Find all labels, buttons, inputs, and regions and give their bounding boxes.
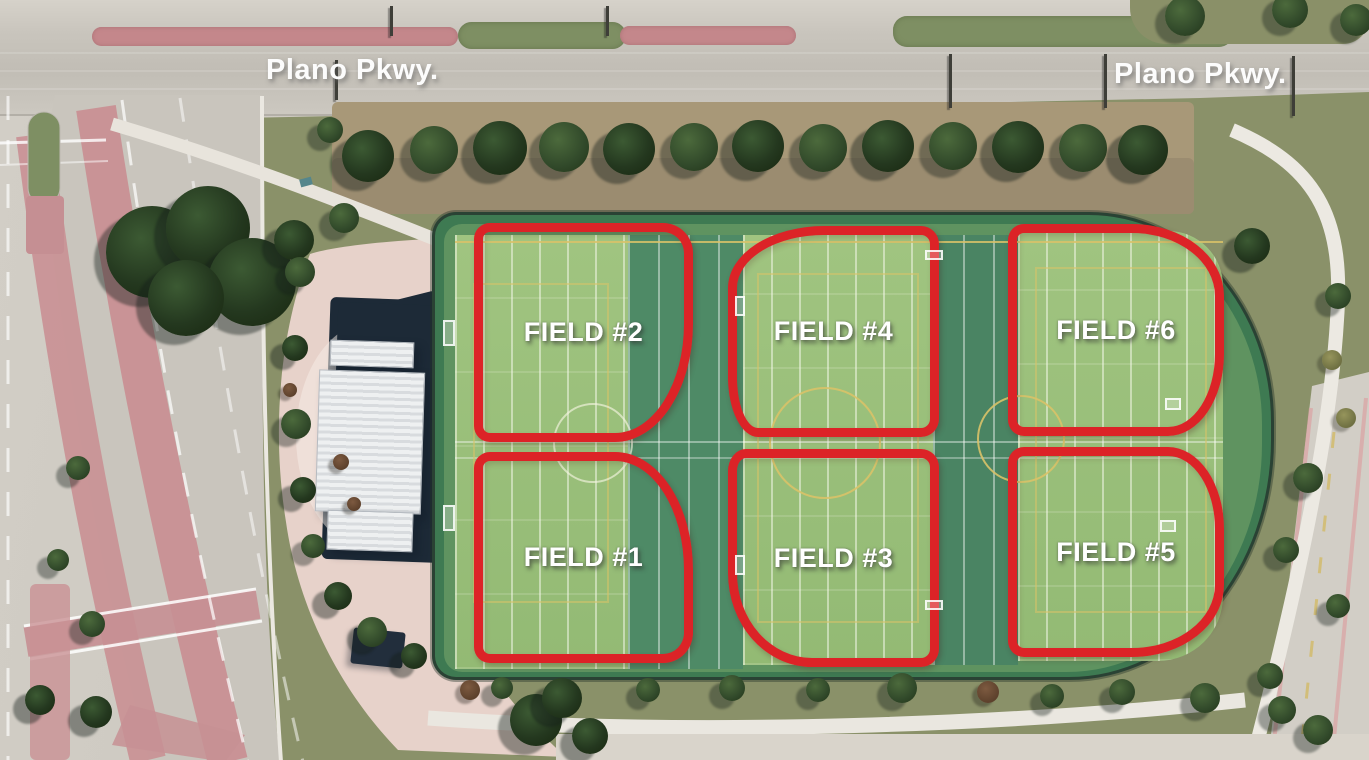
tree	[66, 456, 90, 480]
tree	[1059, 124, 1107, 172]
tree	[80, 696, 112, 728]
soccer-goal	[925, 250, 943, 260]
tree	[603, 123, 655, 175]
tree	[1322, 350, 1342, 370]
tree	[887, 673, 917, 703]
pavilion-main-roof	[315, 369, 425, 514]
field-5-outline: FIELD #5	[1008, 447, 1224, 657]
tree	[1109, 679, 1135, 705]
tree	[329, 203, 359, 233]
tree	[342, 130, 394, 182]
tree	[1040, 684, 1064, 708]
pavilion-roof-section	[326, 510, 413, 553]
tree	[333, 454, 349, 470]
tree	[281, 409, 311, 439]
tree	[1257, 663, 1283, 689]
light-pole	[1104, 54, 1107, 108]
tree	[542, 678, 582, 718]
aerial-map: FIELD #2 FIELD #1 FIELD #4 FIELD #3 FIEL…	[0, 0, 1369, 760]
tree	[274, 220, 314, 260]
tree	[148, 260, 224, 336]
tree	[460, 680, 480, 700]
tree	[401, 643, 427, 669]
field-4-label: FIELD #4	[774, 316, 894, 347]
tree	[317, 117, 343, 143]
red-brick-patch	[30, 584, 70, 760]
tree	[670, 123, 718, 171]
tree	[1325, 283, 1351, 309]
field-3-outline: FIELD #3	[728, 449, 939, 667]
tree	[1118, 125, 1168, 175]
tree	[324, 582, 352, 610]
tree	[806, 678, 830, 702]
tree	[347, 497, 361, 511]
field-2-label: FIELD #2	[524, 317, 644, 348]
light-pole	[1292, 56, 1295, 116]
tree	[1190, 683, 1220, 713]
tree	[799, 124, 847, 172]
field-2-outline: FIELD #2	[474, 223, 693, 442]
tree	[977, 681, 999, 703]
field-6-label: FIELD #6	[1056, 315, 1176, 346]
tree	[1340, 4, 1369, 36]
pavilion-roof-section	[330, 340, 415, 369]
soccer-goal	[925, 600, 943, 610]
field-1-outline: FIELD #1	[474, 452, 693, 663]
tree	[285, 257, 315, 287]
tree	[473, 121, 527, 175]
field-5-label: FIELD #5	[1056, 537, 1176, 568]
tree	[1273, 537, 1299, 563]
tree	[357, 617, 387, 647]
tree	[539, 122, 589, 172]
soccer-goal	[735, 296, 745, 316]
soccer-goal	[1160, 520, 1176, 532]
street-label-west: Plano Pkwy.	[266, 54, 439, 87]
tree	[732, 120, 784, 172]
tree	[572, 718, 608, 754]
grass-median-capsule	[28, 112, 60, 204]
tree	[862, 120, 914, 172]
tree	[290, 477, 316, 503]
light-pole	[949, 54, 952, 108]
tree	[1303, 715, 1333, 745]
tree	[929, 122, 977, 170]
tree	[992, 121, 1044, 173]
tree	[79, 611, 105, 637]
tree	[1293, 463, 1323, 493]
tree	[1326, 594, 1350, 618]
field-4-outline: FIELD #4	[728, 226, 939, 437]
tree	[283, 383, 297, 397]
soccer-goal	[443, 505, 455, 531]
field-6-outline: FIELD #6	[1008, 224, 1224, 436]
tree	[1268, 696, 1296, 724]
tree	[410, 126, 458, 174]
soccer-goal	[1165, 398, 1181, 410]
light-pole	[606, 6, 609, 36]
tree	[301, 534, 325, 558]
tree	[719, 675, 745, 701]
light-pole	[390, 6, 393, 36]
street-label-east: Plano Pkwy.	[1114, 58, 1287, 91]
tree	[491, 677, 513, 699]
tree	[25, 685, 55, 715]
field-3-label: FIELD #3	[774, 543, 894, 574]
tree	[1336, 408, 1356, 428]
field-1-label: FIELD #1	[524, 542, 644, 573]
soccer-goal	[443, 320, 455, 346]
bottom-pavement	[556, 734, 1369, 760]
tree	[282, 335, 308, 361]
tree	[47, 549, 69, 571]
soccer-goal	[735, 555, 745, 575]
tree	[1234, 228, 1270, 264]
red-brick-patch	[26, 196, 64, 254]
tree	[636, 678, 660, 702]
